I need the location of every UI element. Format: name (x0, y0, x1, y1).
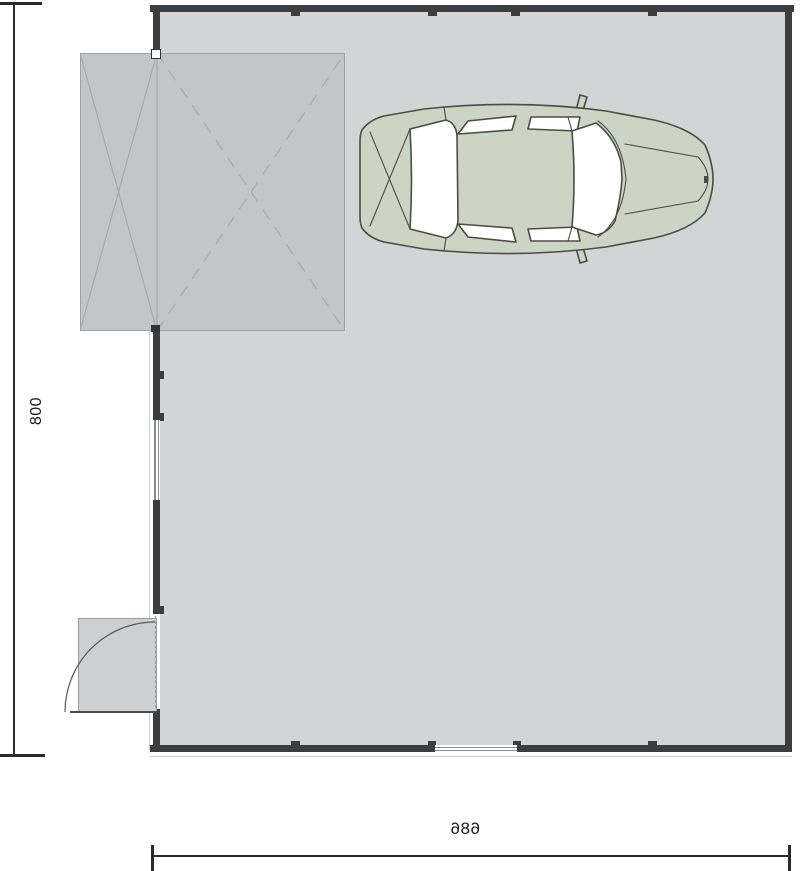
entry-door-leaf (70, 711, 157, 713)
dimension-cap-right (788, 845, 791, 871)
window-bottom-glazing-line (435, 747, 517, 749)
entry-door-swing-arc (60, 612, 160, 717)
wall-joint-tick (648, 741, 657, 745)
wall-top (150, 5, 794, 12)
dimension-line-bottom (152, 855, 790, 857)
window-left-glazing-line (154, 420, 156, 500)
wall-bottom-left-segment (150, 745, 435, 752)
garage-door-panel-diagonals (80, 53, 345, 331)
door-jamb-marker-top (151, 49, 161, 59)
wall-joint-tick (428, 12, 437, 16)
car-top-view-icon (356, 92, 716, 267)
wall-joint-tick (291, 741, 300, 745)
dimension-line-left (13, 3, 15, 756)
floor-plan-canvas: 800 686 (0, 0, 800, 871)
wall-joint-tick (291, 12, 300, 16)
window-left-glazing-line (158, 420, 160, 500)
entry-door-opening-dashed-line (155, 616, 156, 708)
wall-joint-tick (513, 741, 521, 745)
wall-bottom-right-segment (517, 745, 792, 752)
wall-joint-tick (428, 741, 436, 745)
dimension-cap-left (151, 845, 154, 871)
dimension-label-left: 800 (24, 395, 50, 427)
door-jamb-marker-bottom (151, 325, 160, 332)
wall-right (785, 5, 792, 752)
wall-joint-tick (648, 12, 657, 16)
window-bottom-glazing-line (435, 750, 517, 752)
dimension-label-bottom: 686 (400, 817, 530, 841)
garage-door-panel (80, 53, 345, 331)
wall-left-segment-2 (153, 331, 160, 420)
wall-left-segment-1 (153, 5, 160, 53)
wall-left-segment-3 (153, 500, 160, 614)
wall-joint-tick (160, 413, 164, 421)
dimension-cap-top (0, 2, 42, 5)
exterior-face-line-bottom (150, 756, 792, 757)
wall-joint-tick (160, 371, 164, 379)
wall-joint-tick (160, 606, 164, 614)
dimension-cap-bottom (0, 754, 45, 757)
wall-joint-tick (511, 12, 520, 16)
